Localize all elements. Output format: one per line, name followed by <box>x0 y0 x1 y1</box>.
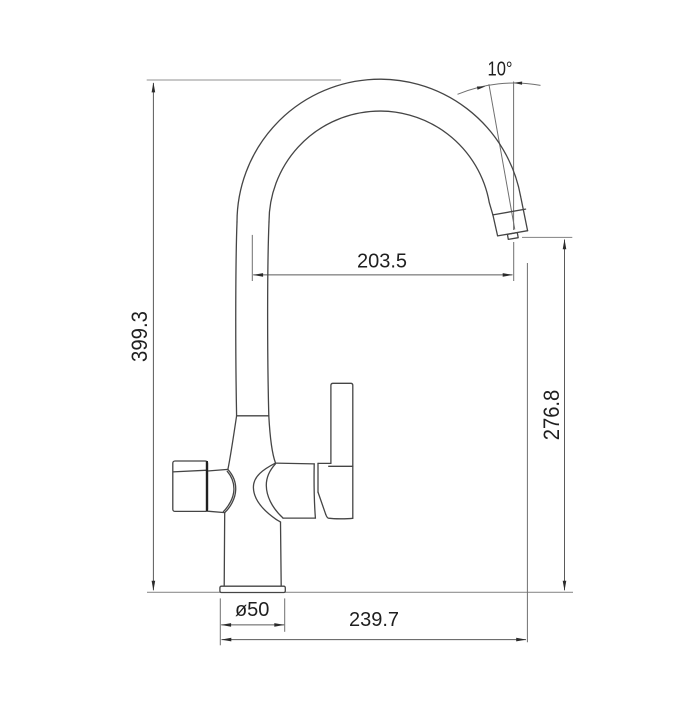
svg-text:203.5: 203.5 <box>357 251 407 273</box>
svg-text:ø50: ø50 <box>235 599 269 621</box>
svg-text:239.7: 239.7 <box>349 609 399 631</box>
svg-text:10°: 10° <box>488 59 513 81</box>
svg-text:399.3: 399.3 <box>127 311 152 362</box>
svg-text:276.8: 276.8 <box>539 390 564 441</box>
